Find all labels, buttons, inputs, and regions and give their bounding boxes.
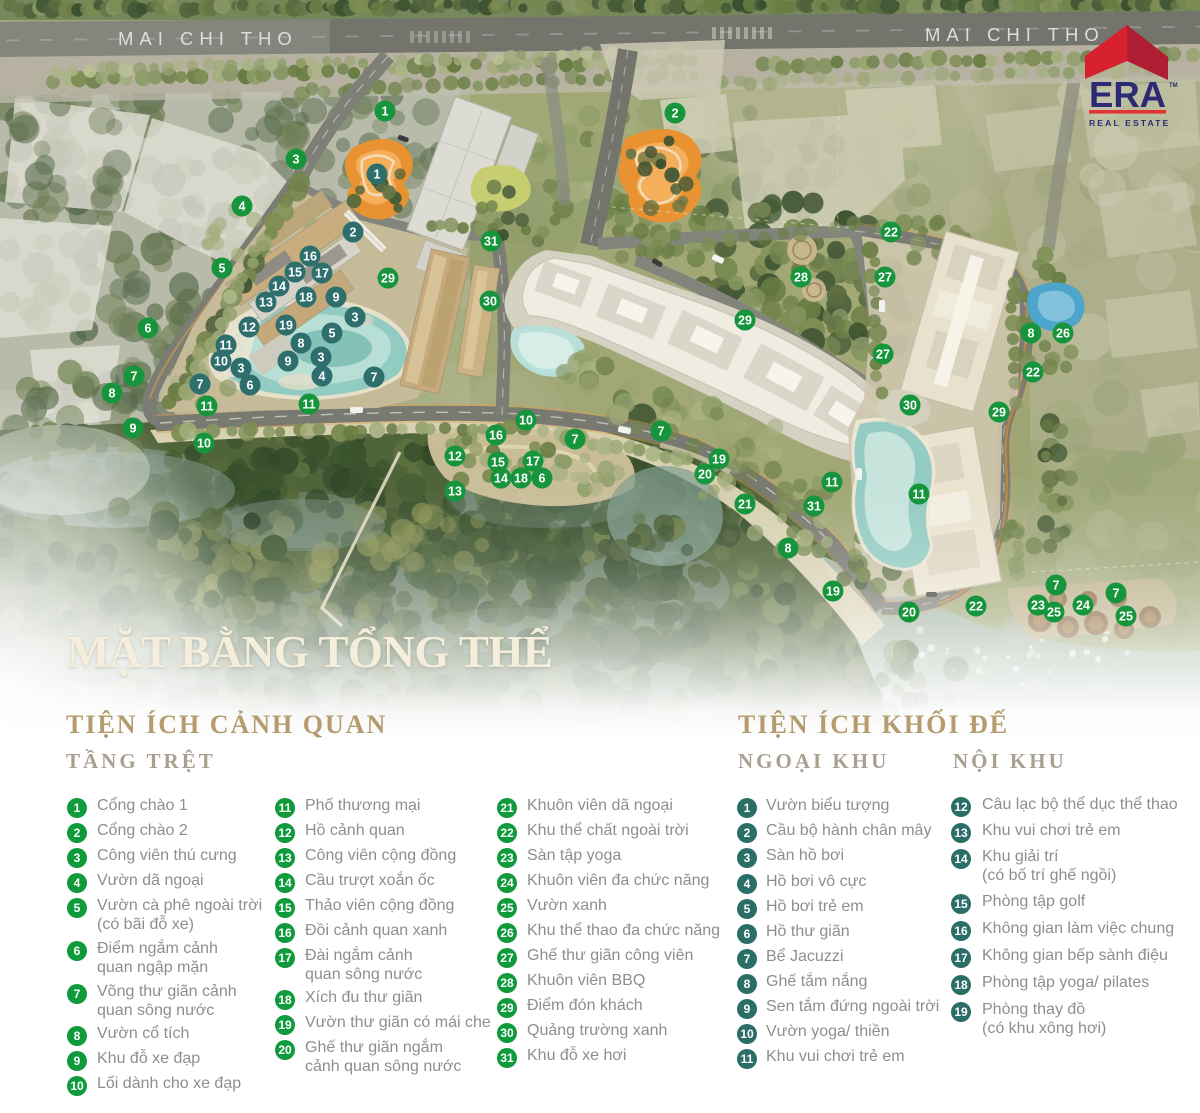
svg-text:9: 9 xyxy=(130,421,137,435)
svg-text:7: 7 xyxy=(572,432,579,446)
svg-text:1: 1 xyxy=(374,167,381,181)
svg-text:6: 6 xyxy=(247,378,254,392)
svg-text:13: 13 xyxy=(259,295,273,309)
svg-text:9: 9 xyxy=(285,354,292,368)
svg-text:30: 30 xyxy=(903,398,917,412)
svg-text:11: 11 xyxy=(912,487,925,501)
svg-text:ERA: ERA xyxy=(1089,74,1166,115)
svg-text:24: 24 xyxy=(1076,598,1090,612)
svg-text:5: 5 xyxy=(329,326,336,340)
svg-text:8: 8 xyxy=(109,386,116,400)
svg-text:2: 2 xyxy=(672,106,679,120)
svg-text:15: 15 xyxy=(491,455,505,469)
svg-text:18: 18 xyxy=(514,471,528,485)
svg-text:7: 7 xyxy=(131,369,138,383)
svg-text:27: 27 xyxy=(876,347,890,361)
svg-text:7: 7 xyxy=(658,424,665,438)
svg-text:11: 11 xyxy=(302,397,315,411)
svg-text:25: 25 xyxy=(1047,605,1061,619)
svg-text:8: 8 xyxy=(298,336,305,350)
svg-text:27: 27 xyxy=(878,270,892,284)
svg-text:16: 16 xyxy=(489,428,503,442)
svg-text:30: 30 xyxy=(483,294,497,308)
svg-text:9: 9 xyxy=(333,290,340,304)
svg-text:18: 18 xyxy=(299,290,313,304)
svg-text:17: 17 xyxy=(315,266,329,280)
svg-text:10: 10 xyxy=(197,436,211,450)
svg-text:4: 4 xyxy=(319,369,326,383)
svg-text:8: 8 xyxy=(1028,326,1035,340)
svg-text:21: 21 xyxy=(738,497,752,511)
svg-text:22: 22 xyxy=(969,599,983,613)
svg-text:10: 10 xyxy=(214,354,228,368)
svg-text:7: 7 xyxy=(197,377,204,391)
svg-text:13: 13 xyxy=(448,484,462,498)
svg-text:22: 22 xyxy=(1026,365,1040,379)
svg-text:3: 3 xyxy=(293,152,300,166)
svg-text:31: 31 xyxy=(484,234,498,248)
svg-text:TM: TM xyxy=(1169,83,1178,89)
svg-text:19: 19 xyxy=(826,584,840,598)
svg-text:29: 29 xyxy=(738,313,752,327)
svg-text:29: 29 xyxy=(381,271,395,285)
svg-text:25: 25 xyxy=(1119,609,1133,623)
svg-text:3: 3 xyxy=(352,310,359,324)
svg-text:5: 5 xyxy=(219,261,226,275)
svg-text:2: 2 xyxy=(350,225,357,239)
svg-text:14: 14 xyxy=(272,279,286,293)
svg-text:22: 22 xyxy=(884,225,898,239)
svg-text:4: 4 xyxy=(239,199,246,213)
svg-text:7: 7 xyxy=(1113,586,1120,600)
svg-text:12: 12 xyxy=(448,449,462,463)
svg-text:20: 20 xyxy=(902,605,916,619)
svg-text:23: 23 xyxy=(1031,598,1045,612)
svg-text:19: 19 xyxy=(279,318,293,332)
svg-text:15: 15 xyxy=(288,265,302,279)
svg-text:8: 8 xyxy=(785,541,792,555)
svg-text:19: 19 xyxy=(712,452,726,466)
svg-text:20: 20 xyxy=(698,467,712,481)
svg-text:12: 12 xyxy=(242,320,256,334)
svg-text:29: 29 xyxy=(992,405,1006,419)
svg-text:16: 16 xyxy=(303,249,317,263)
svg-text:7: 7 xyxy=(371,370,378,384)
svg-text:14: 14 xyxy=(494,471,508,485)
svg-text:6: 6 xyxy=(145,321,152,335)
svg-text:REAL ESTATE: REAL ESTATE xyxy=(1089,118,1170,128)
svg-text:7: 7 xyxy=(1053,578,1060,592)
svg-text:1: 1 xyxy=(382,104,389,118)
svg-text:3: 3 xyxy=(238,361,245,375)
svg-text:3: 3 xyxy=(318,350,325,364)
svg-text:26: 26 xyxy=(1056,326,1070,340)
svg-text:11: 11 xyxy=(219,338,232,352)
svg-text:10: 10 xyxy=(519,413,533,427)
svg-text:11: 11 xyxy=(825,475,838,489)
svg-text:17: 17 xyxy=(526,454,540,468)
svg-text:31: 31 xyxy=(807,499,821,513)
svg-text:28: 28 xyxy=(794,270,808,284)
svg-text:6: 6 xyxy=(539,471,546,485)
svg-text:11: 11 xyxy=(200,399,213,413)
